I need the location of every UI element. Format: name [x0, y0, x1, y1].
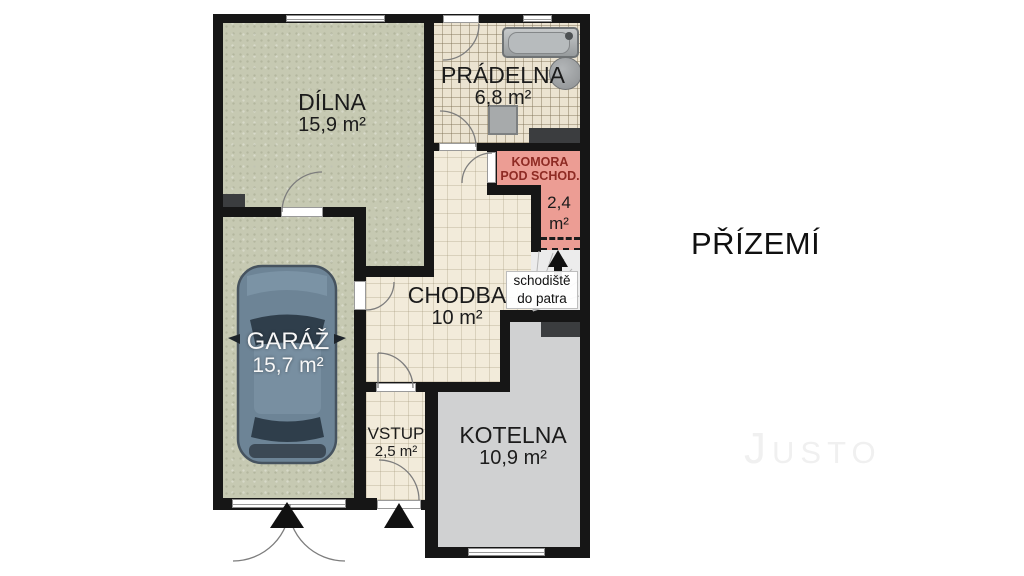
room-label-kotelna: KOTELNA 10,9 m²	[459, 423, 566, 469]
faucet-icon	[565, 32, 573, 40]
room-area: 15,9 m²	[298, 114, 366, 136]
door-chodba-vstup	[376, 383, 416, 392]
dashed-boundary	[541, 248, 580, 250]
room-area: 10,9 m²	[459, 447, 566, 469]
wall-right	[580, 14, 590, 558]
window	[468, 548, 545, 556]
room-label-garaz: GARÁŽ 15,7 m²	[247, 329, 330, 377]
room-name: PRÁDELNA	[441, 63, 565, 87]
room-area-komora: 2,4 m²	[547, 192, 571, 234]
room-kotelna-floor	[438, 392, 580, 547]
wall-stairs-bottom	[502, 310, 583, 322]
washing-machine	[488, 105, 518, 135]
room-name: KOTELNA	[459, 423, 566, 447]
room-name: VSTUP	[368, 425, 425, 443]
door-vstup-entry	[377, 500, 421, 509]
door-garaz-chodba	[354, 281, 366, 310]
room-name: CHODBA	[408, 283, 506, 307]
room-label-komora: KOMORA POD SCHOD.	[500, 155, 579, 183]
staircase-label: schodiště do patra	[506, 271, 578, 309]
wall-left	[213, 14, 223, 510]
room-name: POD SCHOD.	[500, 169, 579, 183]
room-label-pradelna: PRÁDELNA 6,8 m²	[441, 63, 565, 109]
window	[523, 15, 552, 22]
wall-dilna-alcove-bottom	[354, 266, 434, 277]
dashed-boundary	[541, 237, 580, 240]
room-name: DÍLNA	[298, 90, 366, 114]
garage-door	[232, 499, 346, 508]
room-area: 2,5 m²	[368, 443, 425, 460]
room-label-dilna: DÍLNA 15,9 m²	[298, 90, 366, 136]
room-area: 15,7 m²	[247, 354, 330, 377]
door-pradelna-top	[443, 15, 479, 23]
room-name: GARÁŽ	[247, 329, 330, 354]
watermark: Justo	[744, 424, 882, 474]
wall-komora-left-lower	[531, 193, 541, 252]
bathtub-basin	[508, 32, 570, 54]
room-dilna-alcove-floor	[366, 207, 424, 266]
door-dilna	[281, 207, 323, 217]
bathtub	[502, 27, 579, 58]
room-label-chodba: CHODBA 10 m²	[408, 283, 506, 329]
wall-kotelna-left	[425, 382, 438, 558]
room-label-vstup: VSTUP 2,5 m²	[368, 425, 425, 460]
page-title: PŘÍZEMÍ	[691, 226, 820, 262]
window	[286, 15, 385, 22]
wall-garaz-right	[354, 207, 366, 500]
counter-block	[529, 128, 580, 143]
room-area: 6,8 m²	[441, 87, 565, 109]
floor-plan-canvas: DÍLNA 15,9 m² PRÁDELNA 6,8 m² KOMORA POD…	[0, 0, 1024, 576]
room-name: KOMORA	[500, 155, 579, 169]
door-pradelna-chodba	[439, 143, 477, 151]
door-komora	[487, 152, 496, 183]
room-area: 10 m²	[408, 307, 506, 329]
